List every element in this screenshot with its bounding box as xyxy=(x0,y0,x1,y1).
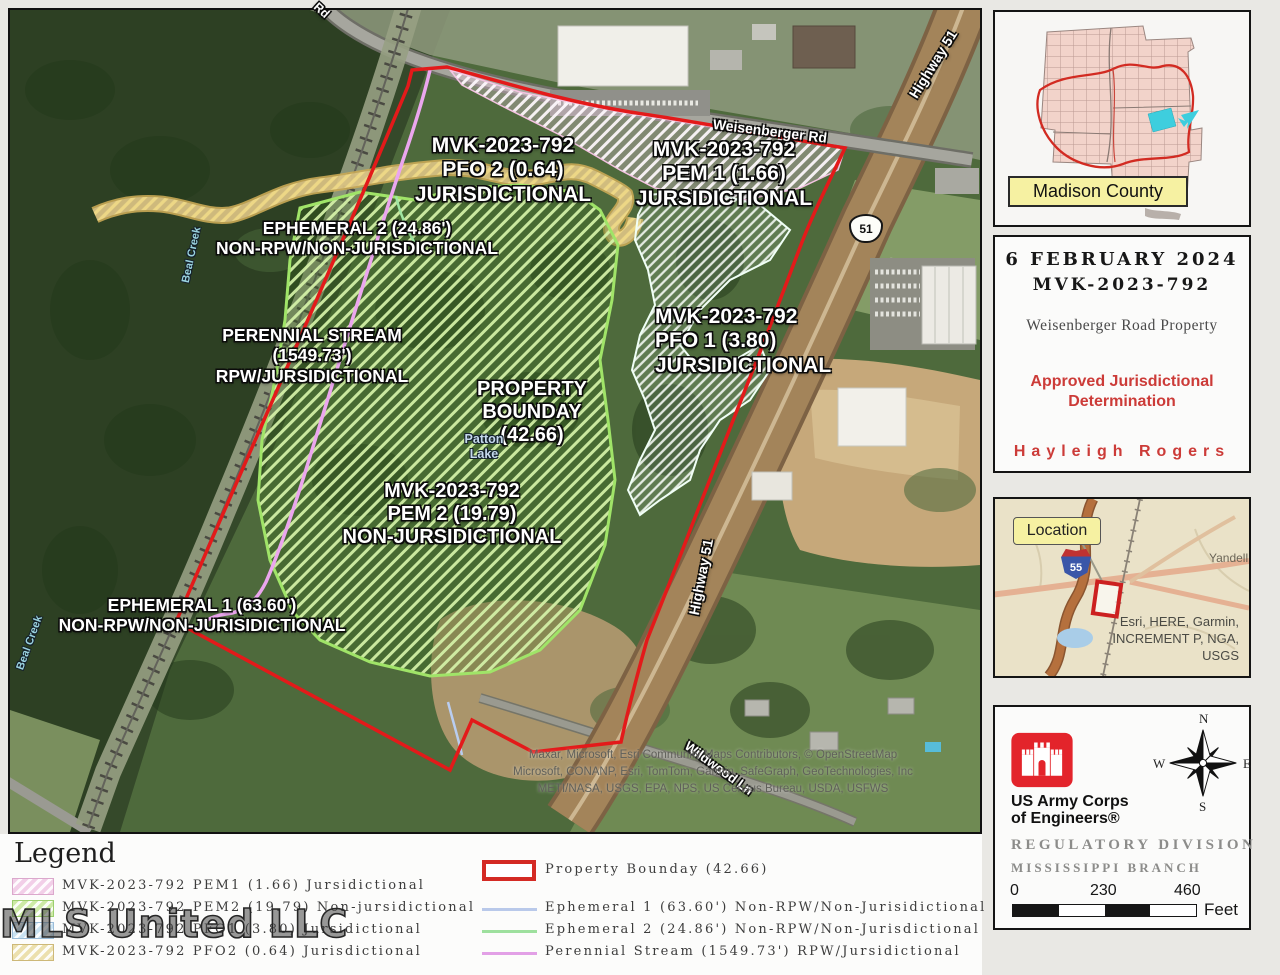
compass-e: E xyxy=(1243,756,1251,772)
scale-tick-460: 460 xyxy=(1174,882,1201,900)
property-name: Weisenberger Road Property xyxy=(995,317,1249,335)
division-name: REGULATORY DIVISION xyxy=(1011,837,1256,854)
legend-swatch-ephemeral2 xyxy=(482,930,537,933)
scale-bar-segments xyxy=(1012,904,1197,917)
map-attribution: Maxar, Microsoft, Esri Community Maps Co… xyxy=(513,747,913,798)
map-date: 6 FEBRUARY 2024 xyxy=(995,249,1249,270)
usace-castle-logo xyxy=(1010,732,1074,788)
jd-map-sheet: { "map": { "labels": { "pfo2": {"l1": "M… xyxy=(0,0,1280,975)
compass-rose-icon: N E S W xyxy=(1165,725,1241,801)
location-highlight-box xyxy=(1093,581,1121,616)
scale-tick-0: 0 xyxy=(1010,882,1019,900)
legend-label-boundary: Property Bounday (42.66) xyxy=(545,862,769,877)
determination-status-line1: Approved Jurisdictional xyxy=(995,373,1249,391)
legend-swatch-ephemeral1 xyxy=(482,908,537,911)
compass-w: W xyxy=(1153,756,1165,772)
project-number: MVK-2023-792 xyxy=(995,275,1249,295)
legend-label-ephemeral1: Ephemeral 1 (63.60') Non-RPW/Non-Jurisid… xyxy=(545,900,986,915)
watermark: MLS United LLC xyxy=(0,902,348,946)
legend-swatch-pfo2 xyxy=(12,944,54,961)
scale-tick-230: 230 xyxy=(1090,882,1117,900)
branding-panel: US Army Corps of Engineers® N E S W REGU… xyxy=(993,705,1251,930)
legend-label-ephemeral2: Ephemeral 2 (24.86') Non-RPW/Non-Jurisdi… xyxy=(545,922,980,937)
label-pfo2: MVK-2023-792 PFO 2 (0.64) JURISDICTIONAL xyxy=(415,134,591,207)
water-label-patton-lake: Patton Lake xyxy=(465,432,504,461)
madison-county-label: Madison County xyxy=(1008,176,1188,207)
author-name: Hayleigh Rogers xyxy=(995,443,1249,461)
legend-swatch-stream xyxy=(482,952,537,955)
determination-status-line2: Determination xyxy=(995,393,1249,411)
compass-s: S xyxy=(1199,799,1206,815)
title-panel: 6 FEBRUARY 2024 MVK-2023-792 Weisenberge… xyxy=(993,235,1251,473)
legend-label-pem1: MVK-2023-792 PEM1 (1.66) Jursidictional xyxy=(62,878,425,893)
label-perennial-stream: PERENNIAL STREAM (1549.73') RPW/JURSIDIC… xyxy=(216,325,409,386)
label-pem2: MVK-2023-792 PEM 2 (19.79) NON-JURSIDICT… xyxy=(343,480,562,550)
label-ephemeral2: EPHEMERAL 2 (24.86') NON-RPW/NON-JURISDI… xyxy=(216,218,498,259)
legend-swatch-pem1 xyxy=(12,878,54,895)
legend-label-stream: Perennial Stream (1549.73') RPW/Jursidic… xyxy=(545,944,961,959)
branch-name: MISSISSIPPI BRANCH xyxy=(1011,860,1202,876)
location-attribution: Esri, HERE, Garmin, INCREMENT P, NGA, US… xyxy=(1112,613,1239,664)
legend-swatch-boundary xyxy=(482,860,536,881)
location-callout: Location xyxy=(1013,517,1101,545)
location-inset-panel: Location 55 Yandell Esri, HERE, Garmin, … xyxy=(993,497,1251,678)
county-inset-panel: Madison County xyxy=(993,10,1251,227)
legend-label-pfo2: MVK-2023-792 PFO2 (0.64) Jurisdictional xyxy=(62,944,422,959)
scale-unit: Feet xyxy=(1204,900,1238,920)
label-pfo1: MVK-2023-792 PFO 1 (3.80) JURSIDICTIONAL xyxy=(655,305,831,378)
org-name: US Army Corps of Engineers® xyxy=(1011,793,1129,827)
yandell-road-label: Yandell xyxy=(1209,551,1248,565)
scale-bar: 0 230 460 Feet xyxy=(1012,882,1244,926)
label-pem1: MVK-2023-792 PEM 1 (1.66) JURSIDICTIONAL xyxy=(636,138,812,211)
label-ephemeral1: EPHEMERAL 1 (63.60') NON-RPW/NON-JURISID… xyxy=(59,595,346,636)
compass-n: N xyxy=(1199,711,1208,727)
